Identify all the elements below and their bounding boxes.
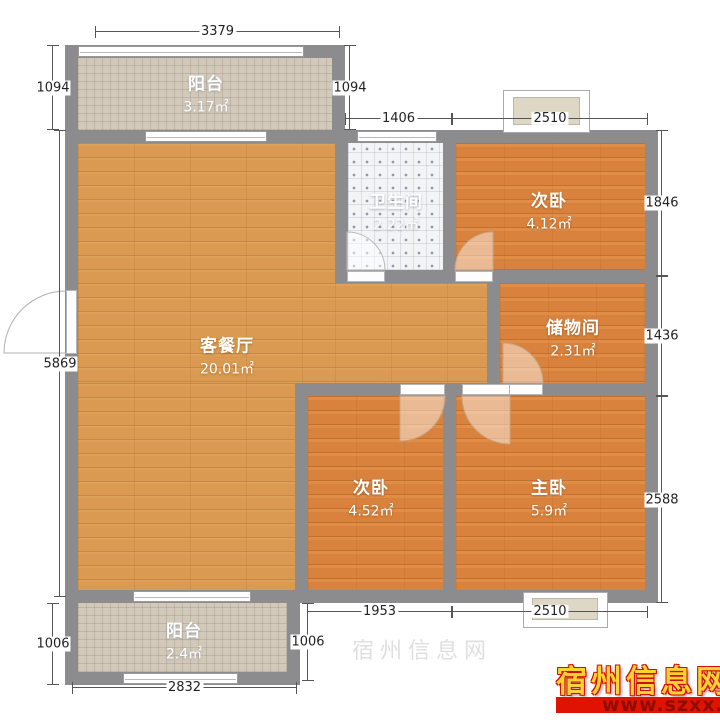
dim-bedroom-top-width: 2510 [452, 118, 648, 119]
dim-left-side-height: 5869 [59, 130, 60, 597]
bedroom-top-door-arc [455, 232, 493, 270]
watermark-site-url: www.szxx.com.cn [602, 697, 720, 713]
room-label-bedroom-left: 次卧 4.52㎡ [348, 474, 393, 521]
dim-bathroom-width: 1406 [345, 118, 452, 119]
dim-bedroom-left-width: 1953 [307, 611, 452, 612]
watermark-site-name: 宿州信息网 [556, 656, 720, 701]
room-label-bedroom-top: 次卧 4.12㎡ [526, 187, 571, 234]
room-label-storage: 储物间 2.31㎡ [546, 314, 600, 361]
dim-balcony-top-width: 3379 [95, 31, 340, 32]
dim-balcony-bottom-height-left: 1006 [52, 603, 53, 685]
entry-door-arc [4, 291, 66, 353]
dim-balcony-top-height-left: 1094 [52, 45, 53, 130]
room-label-master: 主卧 5.9㎡ [531, 474, 567, 521]
storage-door-arc [503, 343, 543, 383]
floor-plan: 3379 1094 1094 1406 2510 1846 1436 2588 … [0, 0, 720, 720]
room-label-living: 客餐厅 20.01㎡ [200, 332, 254, 379]
bathroom-door-arc [347, 232, 385, 270]
master-door-arc [462, 396, 510, 444]
dim-bedroom-top-height: 1846 [661, 130, 662, 276]
room-label-balcony-top: 阳台 3.17㎡ [183, 70, 228, 117]
room-label-bathroom: 卫生间 2.22㎡ [369, 188, 423, 235]
room-label-balcony-bottom: 阳台 2.4㎡ [166, 617, 202, 664]
watermark-ghost: 宿州信息网 [352, 633, 492, 665]
watermark-url-bar: www.szxx.com.cn [556, 697, 720, 713]
dim-master-width: 2510 [452, 611, 648, 612]
dim-storage-height: 1436 [661, 276, 662, 396]
dim-master-height: 2588 [661, 396, 662, 603]
dim-balcony-bottom-width: 2832 [72, 687, 297, 688]
bedroom-left-door-arc [400, 396, 445, 441]
